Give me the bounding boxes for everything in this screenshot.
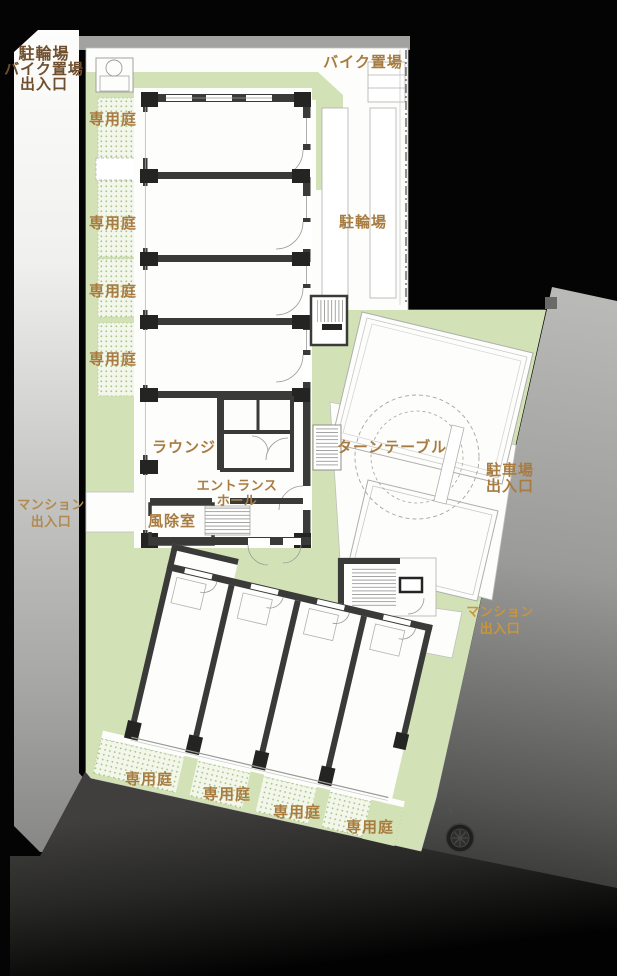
label-line: 出入口	[31, 514, 72, 529]
label-private-garden: 専用庭	[203, 785, 251, 803]
floorplan-svg: 駐輪場 バイク置場 出入口 バイク置場 駐輪場 専用庭 専用庭 専用庭 専用庭 …	[0, 0, 617, 976]
label-line: 出入口	[20, 75, 68, 93]
site-plan-canvas: 駐輪場 バイク置場 出入口 バイク置場 駐輪場 専用庭 専用庭 専用庭 専用庭 …	[0, 0, 617, 976]
label-private-garden: 専用庭	[273, 803, 321, 821]
label-bicycle-storage: 駐輪場	[339, 213, 387, 231]
label-private-garden: 専用庭	[89, 214, 137, 232]
equipment-pad	[96, 58, 133, 92]
label-moto-storage: バイク置場	[323, 54, 403, 71]
label-line: ホール	[217, 493, 258, 508]
boundary-marker	[545, 297, 557, 309]
label-line: マンション	[466, 604, 534, 619]
label-windbreak: 風除室	[148, 512, 196, 530]
label-line: エントランス	[197, 478, 278, 493]
label-parking-entrance: 駐車場 出入口	[486, 461, 534, 495]
label-private-garden: 専用庭	[346, 818, 394, 836]
label-private-garden: 専用庭	[89, 110, 137, 128]
label-lounge: ラウンジ	[152, 439, 216, 456]
label-line: 出入口	[486, 477, 534, 495]
stair-north-court	[311, 296, 347, 345]
label-private-garden: 専用庭	[89, 350, 137, 368]
label-line: 出入口	[480, 621, 521, 636]
label-line: マンション	[17, 497, 85, 512]
label-turntable: ターンテーブル	[337, 438, 447, 456]
label-line: 駐車場	[486, 461, 534, 479]
label-private-garden: 専用庭	[89, 282, 137, 300]
label-private-garden: 専用庭	[125, 770, 173, 788]
